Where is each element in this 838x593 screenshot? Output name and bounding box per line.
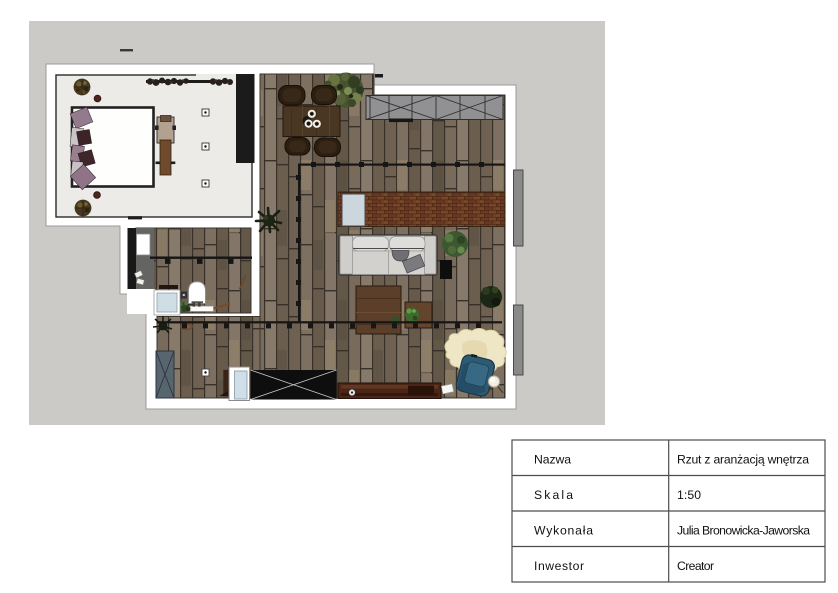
svg-text:Rzut z aranżacją wnętrza: Rzut z aranżacją wnętrza — [677, 453, 809, 467]
svg-text:Nazwa: Nazwa — [534, 453, 571, 467]
svg-text:Creator: Creator — [677, 559, 714, 573]
svg-text:Inwestor: Inwestor — [534, 559, 584, 573]
svg-text:Skala: Skala — [534, 488, 573, 502]
svg-text:1:50: 1:50 — [677, 488, 701, 502]
svg-text:Wykonała: Wykonała — [534, 524, 593, 538]
svg-text:Julia Bronowicka-Jaworska: Julia Bronowicka-Jaworska — [677, 524, 810, 538]
